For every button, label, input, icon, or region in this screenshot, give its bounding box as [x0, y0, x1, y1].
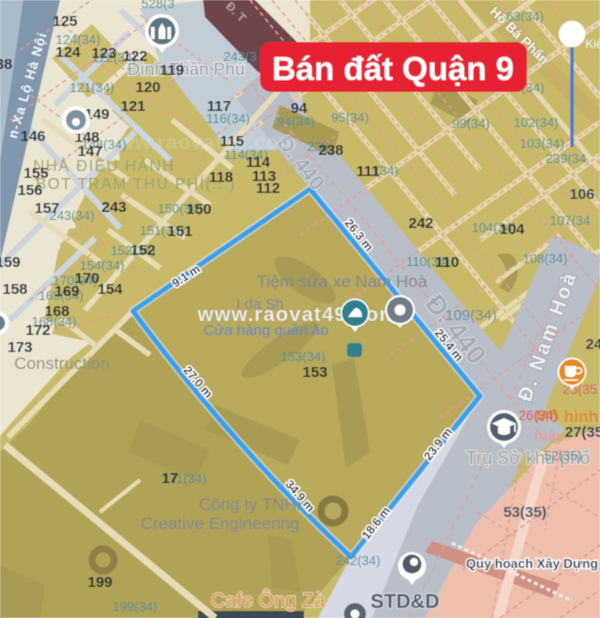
- svg-text:150: 150: [186, 201, 211, 218]
- svg-text:Tiệm sửa xe Nam Hoà: Tiệm sửa xe Nam Hoà: [257, 272, 428, 291]
- svg-text:152: 152: [130, 242, 155, 259]
- svg-text:242: 242: [408, 215, 433, 232]
- svg-text:Quy hoạch Xây Dựng: Quy hoạch Xây Dựng: [466, 556, 598, 571]
- svg-text:24: 24: [586, 336, 600, 353]
- svg-text:125: 125: [52, 13, 77, 30]
- svg-text:199(34): 199(34): [113, 599, 158, 614]
- svg-text:Construction: Construction: [14, 354, 109, 373]
- svg-text:109(34): 109(34): [445, 307, 497, 324]
- svg-text:94: 94: [291, 100, 308, 117]
- svg-text:243(3: 243(3: [223, 49, 256, 64]
- svg-text:104: 104: [499, 221, 525, 238]
- svg-text:BOT TRẠM THU PHÍ(...): BOT TRẠM THU PHÍ(...): [36, 176, 236, 193]
- svg-text:52(35): 52(35): [544, 448, 582, 463]
- svg-text:27(35: 27(35: [565, 424, 600, 441]
- svg-text:122: 122: [122, 48, 147, 65]
- svg-text:118: 118: [209, 169, 233, 186]
- svg-text:Creative Engineering: Creative Engineering: [141, 514, 300, 533]
- svg-text:153(34): 153(34): [281, 349, 326, 364]
- svg-text:95(34): 95(34): [331, 110, 369, 125]
- svg-text:108(34): 108(34): [523, 251, 568, 266]
- svg-text:151: 151: [167, 223, 192, 240]
- svg-text:147: 147: [77, 143, 102, 160]
- svg-text:242(34): 242(34): [336, 553, 381, 568]
- svg-text:www.raovat49.com: www.raovat49.com: [101, 132, 298, 154]
- svg-text:117: 117: [207, 98, 231, 115]
- svg-text:115: 115: [220, 133, 244, 150]
- svg-text:172: 172: [25, 322, 50, 339]
- svg-text:153: 153: [302, 364, 327, 381]
- svg-text:121: 121: [120, 98, 145, 115]
- svg-text:238: 238: [318, 142, 343, 159]
- svg-text:38: 38: [0, 56, 12, 73]
- svg-text:173: 173: [7, 339, 32, 356]
- svg-text:STD&D: STD&D: [371, 591, 440, 613]
- svg-text:121(34): 121(34): [70, 80, 115, 95]
- svg-text:103(34): 103(34): [520, 136, 565, 151]
- svg-text:Kiế: Kiế: [585, 37, 600, 51]
- svg-text:63(34): 63(34): [506, 9, 544, 24]
- svg-text:239(34: 239(34: [546, 151, 586, 166]
- svg-text:123: 123: [91, 45, 116, 62]
- svg-text:168: 168: [44, 303, 69, 320]
- svg-text:157: 157: [34, 200, 59, 217]
- svg-text:124: 124: [55, 44, 81, 61]
- svg-text:53(35): 53(35): [503, 504, 546, 521]
- svg-text:26(34): 26(34): [518, 408, 557, 423]
- svg-text:112: 112: [256, 180, 280, 197]
- svg-text:máy: máy: [534, 428, 564, 445]
- svg-text:119: 119: [160, 62, 184, 79]
- svg-text:154: 154: [97, 281, 123, 298]
- svg-text:199: 199: [87, 574, 112, 591]
- svg-text:528(3: 528(3: [141, 0, 174, 11]
- svg-text:Bán đất Quận 9: Bán đất Quận 9: [272, 50, 514, 87]
- svg-text:106: 106: [569, 186, 594, 203]
- svg-text:107(34: 107(34: [550, 213, 590, 228]
- svg-text:17: 17: [162, 470, 179, 487]
- svg-text:146: 146: [20, 128, 45, 145]
- svg-text:111: 111: [356, 163, 379, 180]
- svg-text:159: 159: [0, 254, 21, 271]
- svg-text:NHÀ ĐIỀU HÀNH: NHÀ ĐIỀU HÀNH: [33, 158, 175, 175]
- svg-text:169: 169: [54, 283, 79, 300]
- svg-text:102(34): 102(34): [514, 115, 559, 130]
- svg-text:156: 156: [17, 182, 42, 199]
- svg-text:158: 158: [2, 281, 27, 298]
- svg-text:120: 120: [135, 79, 160, 96]
- svg-text:243: 243: [101, 199, 126, 216]
- svg-text:Cafe Ông Zà: Cafe Ông Zà: [211, 589, 326, 612]
- svg-text:155: 155: [23, 165, 48, 182]
- svg-text:110: 110: [435, 254, 459, 271]
- svg-text:99(34): 99(34): [452, 116, 490, 131]
